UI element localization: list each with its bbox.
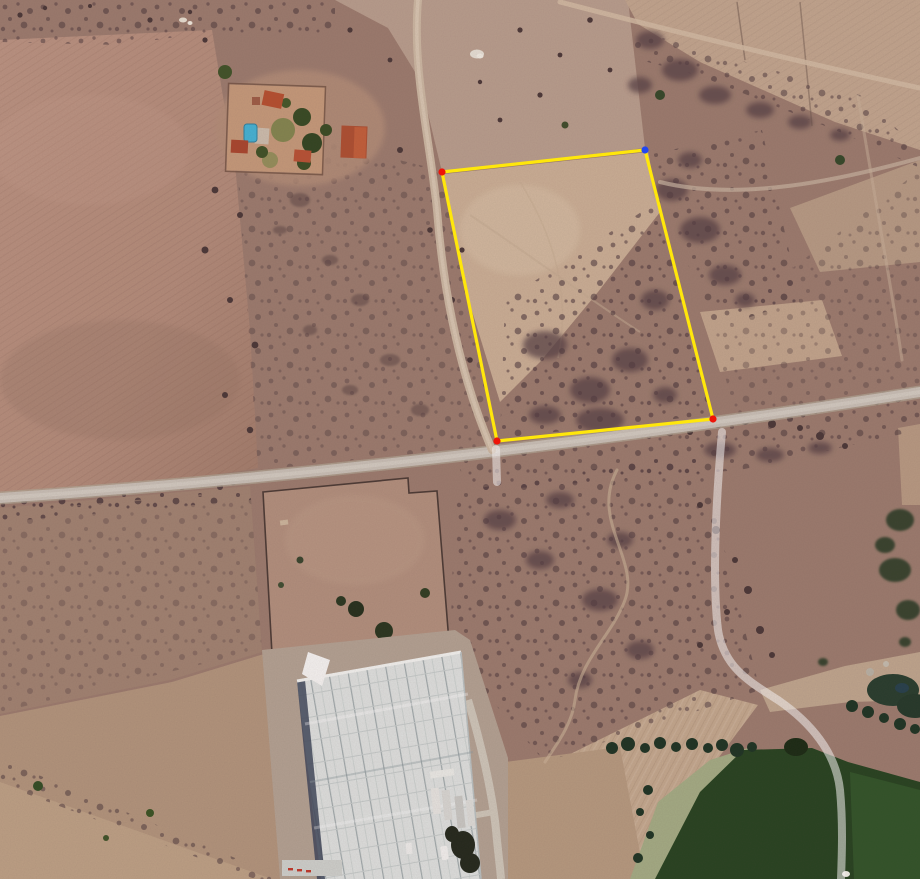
- polygon-vertex-se[interactable]: [709, 415, 716, 422]
- color-cast: [0, 0, 920, 879]
- polygon-vertex-ne[interactable]: [641, 146, 648, 153]
- polygon-vertex-sw[interactable]: [493, 437, 500, 444]
- satellite-map-view[interactable]: [0, 0, 920, 879]
- satellite-map-canvas[interactable]: [0, 0, 920, 879]
- polygon-vertex-nw[interactable]: [438, 168, 445, 175]
